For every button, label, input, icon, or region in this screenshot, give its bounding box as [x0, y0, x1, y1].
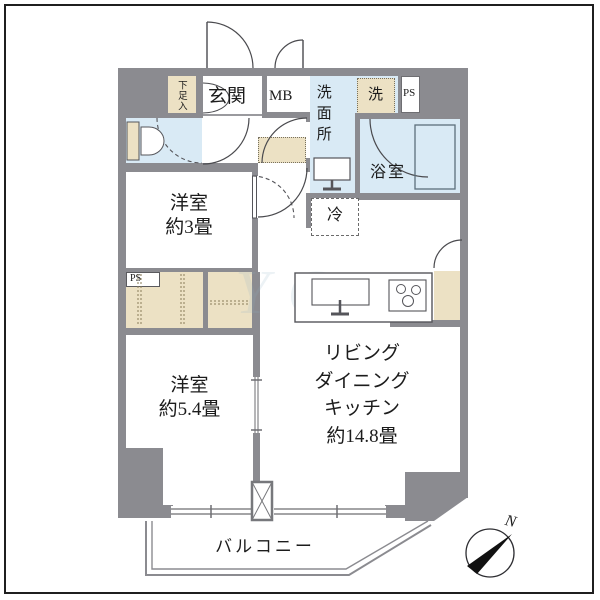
washroom-door-arc [262, 118, 307, 163]
closet-door-tracks [138, 274, 250, 326]
room3-name: 洋室 [126, 192, 252, 216]
room54-label: 洋室 約5.4畳 [126, 374, 253, 422]
balcony-label: バルコニー [185, 536, 345, 557]
ldk-size: 約14.8畳 [283, 423, 441, 451]
pipe-space-top-label: PS [403, 87, 415, 101]
shoe-cabinet-label: 下足入 [174, 80, 186, 112]
toilet-bowl-icon [141, 127, 164, 155]
room3-door-leaf [253, 176, 257, 218]
ldk-line3: キッチン [283, 395, 441, 423]
balcony-window-right [274, 505, 386, 518]
bathroom-label: 浴室 [370, 163, 406, 183]
washbasin-icon [314, 158, 350, 180]
entrance-label: 玄関 [208, 85, 246, 109]
room54-name: 洋室 [126, 374, 253, 398]
bathtub-icon [415, 125, 455, 189]
plan-overlay [0, 0, 600, 600]
compass [466, 529, 514, 577]
ldk-label: リビング ダイニング キッチン 約14.8畳 [283, 340, 441, 450]
balcony-window-left [171, 505, 251, 518]
room3-label: 洋室 約3畳 [126, 192, 252, 240]
washroom-label: 洗面所 [313, 84, 332, 147]
kitchen-side-door-arc [434, 240, 462, 268]
hall-door-arc [203, 118, 249, 164]
toilet-tank-icon [127, 122, 139, 160]
room3-door-arc [252, 176, 294, 218]
front-door-arc [207, 22, 253, 68]
mb-door-arc [275, 40, 303, 68]
pipe-space-left-label: PS [130, 273, 141, 286]
ldk-line1: リビング [283, 340, 441, 368]
pillar-icon [252, 482, 272, 520]
ldk-line2: ダイニング [283, 368, 441, 396]
floor-plan: YC [0, 0, 600, 600]
room3-size: 約3畳 [126, 216, 252, 240]
ldk-door-arc [258, 168, 307, 217]
room54-size: 約5.4畳 [126, 398, 253, 422]
refrigerator-label: 冷 [327, 206, 343, 226]
meter-box-label: MB [269, 87, 292, 106]
wall-bottomright-mass [405, 472, 468, 521]
washer-label: 洗 [368, 86, 383, 105]
